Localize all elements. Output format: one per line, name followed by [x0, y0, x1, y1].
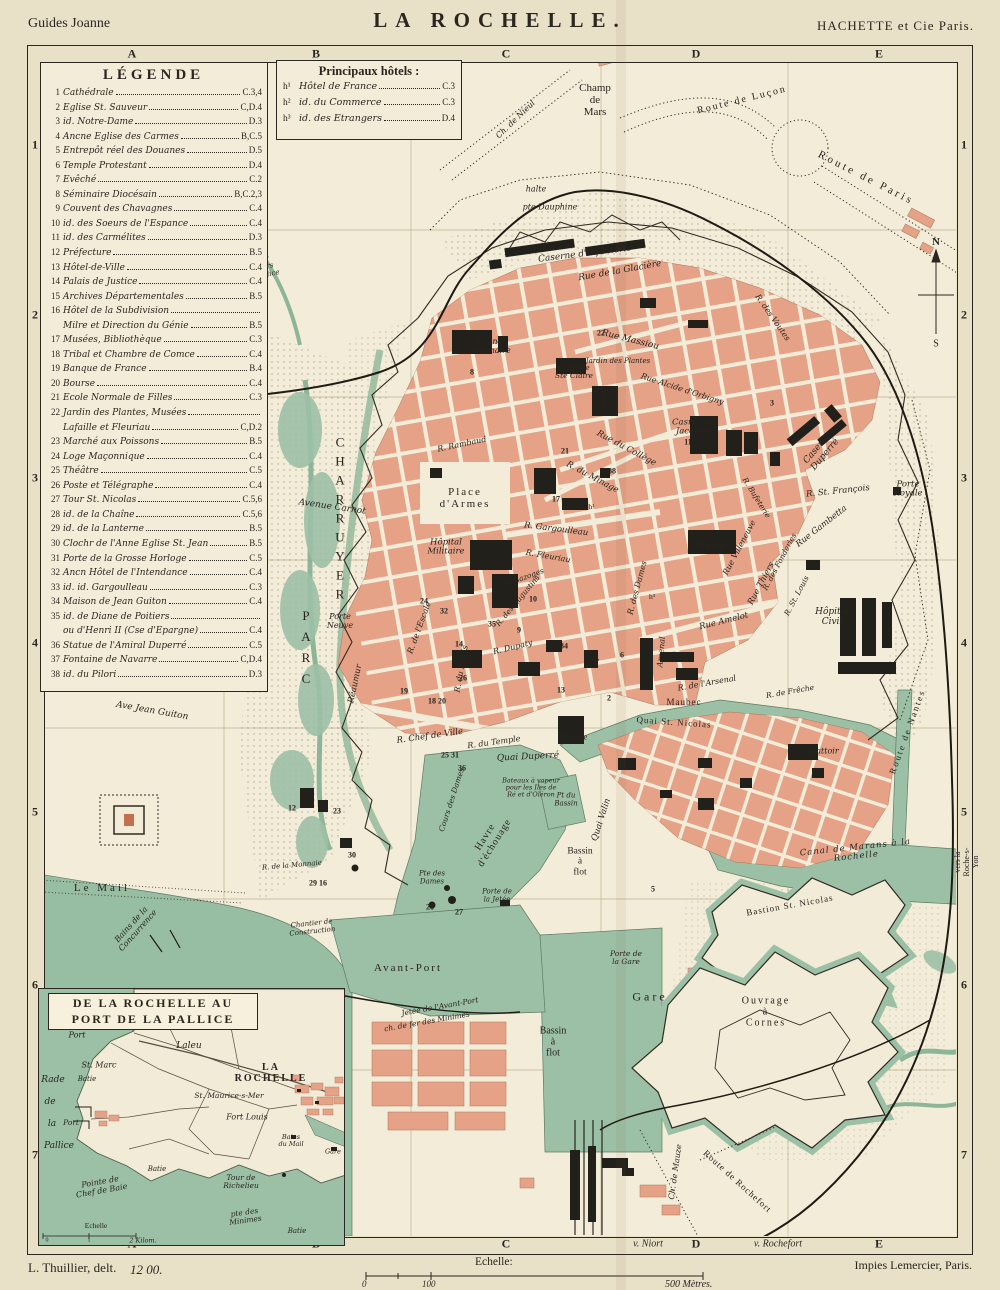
- legend-item-name: Milre et Direction du Génie: [63, 321, 189, 331]
- legend-item-name: id. du Pilori: [63, 670, 116, 680]
- legend-item: 34Maison de Jean GuitonC.4: [45, 596, 262, 611]
- scale-caption: Echelle:: [475, 1256, 513, 1268]
- legend-item: 26Poste et TélégrapheC.4: [45, 480, 262, 495]
- hotel-item-marker: h¹: [283, 82, 299, 92]
- legend-item-number: 12: [45, 247, 63, 257]
- grid-row-3-right: 3: [961, 471, 967, 486]
- legend-item: 14Palais de JusticeC.4: [45, 276, 262, 291]
- hotel-item-name: id. du Commerce: [299, 97, 382, 108]
- legend-item-number: 21: [45, 392, 63, 402]
- legend-item-name: Temple Protestant: [63, 161, 147, 171]
- legend-item-number: 10: [45, 218, 63, 228]
- hotel-item-name: id. des Etrangers: [299, 113, 382, 124]
- legend-item-continuation: Lafaille et FleuriauC,D.2: [45, 422, 262, 437]
- grid-row-5-left: 5: [32, 805, 38, 820]
- legend-item-name: Evêché: [63, 175, 96, 185]
- legend-item-ref: C.5,6: [242, 509, 262, 519]
- legend-item-ref: C,D.4: [240, 654, 262, 664]
- legend-item-name: Hôtel-de-Ville: [63, 263, 125, 273]
- legend-item-number: 36: [45, 640, 63, 650]
- hotel-item-name: Hôtel de France: [299, 81, 377, 92]
- legend-item-ref: C.5: [249, 553, 262, 563]
- legend-leader: [190, 574, 248, 575]
- legend-item: 12PréfectureB.5: [45, 247, 262, 262]
- legend-item-name: Ancn Hôtel de l'Intendance: [63, 568, 188, 578]
- grid-direction-note: v. Niort: [633, 1239, 663, 1250]
- legend-item-ref: D.3: [249, 232, 262, 242]
- grid-col-E-top: E: [875, 47, 883, 62]
- legend-item-name: Banque de France: [63, 364, 147, 374]
- legend-item-name: id. de la Lanterne: [63, 524, 144, 534]
- legend-item: 10id. des Soeurs de l'EspanceC.4: [45, 218, 262, 233]
- grid-row-3-left: 3: [32, 471, 38, 486]
- legend-item-ref: B.5: [249, 320, 262, 330]
- legend-leader: [174, 210, 247, 211]
- legend-item: 3id. Notre-DameD.3: [45, 116, 262, 131]
- legend-leader: [113, 254, 247, 255]
- legend-item: 29id. de la LanterneB.5: [45, 523, 262, 538]
- legend-item-number: 3: [45, 116, 63, 126]
- legend-item: 35id. de Diane de Poitiers: [45, 611, 262, 626]
- legend-leader: [384, 104, 441, 105]
- grid-col-C-bottom: C: [502, 1237, 511, 1252]
- legend-item: 18Tribal et Chambre de ComceC.4: [45, 349, 262, 364]
- legend-item: 33id. id. GargoulleauC.3: [45, 582, 262, 597]
- legend-item-number: 32: [45, 567, 63, 577]
- legend-item-ref: B,C.5: [241, 131, 262, 141]
- legend-item-ref: B.5: [249, 538, 262, 548]
- legend-leader: [171, 312, 260, 313]
- legend-list: 1CathédraleC.3,42Eglise St. SauveurC,D.4…: [45, 87, 262, 683]
- legend-item-ref: C.4: [249, 451, 262, 461]
- legend-item-name: Couvent des Chavagnes: [63, 204, 172, 214]
- legend-item-number: 28: [45, 509, 63, 519]
- legend-item-number: 4: [45, 131, 63, 141]
- legend-item-name: id. id. Gargoulleau: [63, 583, 148, 593]
- legend-item-name: Clochr de l'Anne Eglise St. Jean: [63, 539, 208, 549]
- legend-leader: [159, 196, 232, 197]
- hotels-list: h¹Hôtel de FranceC.3h²id. du CommerceC.3…: [283, 81, 455, 129]
- hotel-item-marker: h²: [283, 98, 299, 108]
- legend-item-ref: C.4: [249, 625, 262, 635]
- legend-leader: [127, 269, 247, 270]
- legend-item-number: 25: [45, 465, 63, 475]
- grid-col-A-top: A: [128, 47, 137, 62]
- legend-item-ref: C,D.2: [240, 422, 262, 432]
- map-sheet: Champ de MarsRoute de LuçonRoute de Pari…: [0, 0, 1000, 1290]
- legend-item-ref: C.3: [249, 334, 262, 344]
- legend-item-ref: B.5: [249, 247, 262, 257]
- scale-bar: [358, 1268, 718, 1284]
- legend-item-ref: C.4: [249, 349, 262, 359]
- legend-item: 27Tour St. NicolasC.5,6: [45, 494, 262, 509]
- scale-hundred: 100: [422, 1279, 436, 1289]
- legend-item-name: Entrepôt réel des Douanes: [63, 146, 185, 156]
- legend-leader: [146, 530, 247, 531]
- grid-col-D-bottom: D: [692, 1237, 701, 1252]
- legend-item: 21Ecole Normale de FillesC.3: [45, 392, 262, 407]
- legend-item-number: 29: [45, 523, 63, 533]
- legend-item-name: Maison de Jean Guiton: [63, 597, 167, 607]
- grid-row-2-right: 2: [961, 308, 967, 323]
- legend-item-name: id. Notre-Dame: [63, 117, 133, 127]
- plate-number: 12 00.: [130, 1262, 163, 1278]
- grid-row-4-left: 4: [32, 636, 38, 651]
- legend-item-ref: C.5: [249, 640, 262, 650]
- printer-credit: Impies Lemercier, Paris.: [855, 1258, 972, 1273]
- legend-item-number: 34: [45, 596, 63, 606]
- legend-item-name: Porte de la Grosse Horloge: [63, 554, 187, 564]
- inset-title-line2: PORT DE LA PALLICE: [49, 1012, 257, 1028]
- grid-direction-note: v. Rochefort: [754, 1239, 802, 1250]
- legend-item-ref: B.5: [249, 291, 262, 301]
- hotel-item-ref: C.3: [442, 81, 455, 91]
- legend-leader: [384, 120, 440, 121]
- legend-leader: [138, 501, 240, 502]
- legend-item-ref: B,C.2,3: [234, 189, 262, 199]
- legend-item: 31Porte de la Grosse HorlogeC.5: [45, 553, 262, 568]
- legend-item-name: Ecole Normale de Filles: [63, 393, 172, 403]
- legend-item: 19Banque de FranceB.4: [45, 363, 262, 378]
- legend-leader: [149, 370, 248, 371]
- legend-leader: [190, 225, 247, 226]
- legend-item: 32Ancn Hôtel de l'IntendanceC.4: [45, 567, 262, 582]
- legend-leader: [97, 385, 247, 386]
- hotel-item: h¹Hôtel de FranceC.3: [283, 81, 455, 97]
- legend-item-ref: D.5: [249, 145, 262, 155]
- legend-leader: [161, 443, 247, 444]
- legend-item-number: 38: [45, 669, 63, 679]
- legend-item-number: 16: [45, 305, 63, 315]
- scale-zero: 0: [362, 1279, 367, 1289]
- legend-item-ref: C.4: [249, 378, 262, 388]
- legend-item-name: Eglise St. Sauveur: [63, 103, 147, 113]
- legend-box: LÉGENDE 1CathédraleC.3,42Eglise St. Sauv…: [40, 62, 268, 692]
- legend-item-name: Séminaire Diocésain: [63, 190, 157, 200]
- legend-item-ref: C.4: [249, 203, 262, 213]
- legend-item: 6Temple ProtestantD.4: [45, 160, 262, 175]
- legend-item-number: 22: [45, 407, 63, 417]
- legend-item-ref: C,D.4: [240, 102, 262, 112]
- legend-item: 9Couvent des ChavagnesC.4: [45, 203, 262, 218]
- hotel-item: h³id. des EtrangersD.4: [283, 113, 455, 129]
- legend-item-ref: B.4: [249, 363, 262, 373]
- legend-item-name: Marché aux Poissons: [63, 437, 159, 447]
- legend-item-ref: D.3: [249, 669, 262, 679]
- legend-item-number: 14: [45, 276, 63, 286]
- hotel-item-ref: C.3: [442, 97, 455, 107]
- inset-title: DE LA ROCHELLE AU PORT DE LA PALLICE: [48, 993, 258, 1030]
- legend-leader: [189, 560, 248, 561]
- legend-leader: [152, 429, 238, 430]
- legend-leader: [150, 589, 247, 590]
- legend-item-number: 5: [45, 145, 63, 155]
- legend-item: 2Eglise St. SauveurC,D.4: [45, 102, 262, 117]
- legend-item-name: Tribal et Chambre de Comce: [63, 350, 195, 360]
- legend-item: 28id. de la ChaîneC.5,6: [45, 509, 262, 524]
- legend-item-name: Ancne Eglise des Carmes: [63, 132, 179, 142]
- legend-item: 37Fontaine de NavarreC,D.4: [45, 654, 262, 669]
- cartographer-credit: L. Thuillier, delt.: [28, 1260, 116, 1276]
- legend-item-number: 8: [45, 189, 63, 199]
- hotel-item-marker: h³: [283, 114, 299, 124]
- grid-col-C-top: C: [502, 47, 511, 62]
- legend-item-name: id. des Carmélites: [63, 233, 146, 243]
- legend-item-number: 7: [45, 174, 63, 184]
- legend-item-number: 19: [45, 363, 63, 373]
- legend-item: 36Statue de l'Amiral DuperréC.5: [45, 640, 262, 655]
- legend-item-name: id. des Soeurs de l'Espance: [63, 219, 188, 229]
- legend-item-name: Poste et Télégraphe: [63, 481, 153, 491]
- inset-title-line1: DE LA ROCHELLE AU: [49, 996, 257, 1012]
- legend-leader: [191, 327, 248, 328]
- legend-item: 7EvêchéC.2: [45, 174, 262, 189]
- legend-leader: [171, 618, 260, 619]
- legend-item-name: Jardin des Plantes, Musées: [63, 408, 186, 418]
- legend-leader: [169, 603, 247, 604]
- legend-item-ref: C.5: [249, 465, 262, 475]
- legend-leader: [181, 138, 239, 139]
- inset-map-box: DE LA ROCHELLE AU PORT DE LA PALLICE Por…: [38, 988, 345, 1246]
- legend-item-name: Théâtre: [63, 466, 99, 476]
- legend-leader: [147, 458, 247, 459]
- legend-item-ref: C.3,4: [242, 87, 262, 97]
- grid-row-6-right: 6: [961, 978, 967, 993]
- legend-item-number: 20: [45, 378, 63, 388]
- legend-item-ref: C.3: [249, 392, 262, 402]
- legend-item: 30Clochr de l'Anne Eglise St. JeanB.5: [45, 538, 262, 553]
- legend-item-number: 2: [45, 102, 63, 112]
- legend-item-number: 11: [45, 232, 63, 242]
- legend-leader: [174, 399, 247, 400]
- map-title: LA ROCHELLE.: [373, 8, 627, 33]
- legend-leader: [135, 123, 246, 124]
- legend-item-name: Lafaille et Fleuriau: [63, 423, 150, 433]
- legend-item: 11id. des CarmélitesD.3: [45, 232, 262, 247]
- legend-item-number: 1: [45, 87, 63, 97]
- legend-item-name: Statue de l'Amiral Duperré: [63, 641, 186, 651]
- legend-item-ref: C.4: [249, 480, 262, 490]
- legend-item-ref: C.5,6: [242, 494, 262, 504]
- legend-item: 25ThéâtreC.5: [45, 465, 262, 480]
- legend-item-number: 13: [45, 262, 63, 272]
- legend-item: 22Jardin des Plantes, Musées: [45, 407, 262, 422]
- legend-item-ref: D.3: [249, 116, 262, 126]
- legend-item-name: id. de Diane de Poitiers: [63, 612, 169, 622]
- legend-item: 17Musées, BibliothèqueC.3: [45, 334, 262, 349]
- legend-item-name: Musées, Bibliothèque: [63, 335, 162, 345]
- grid-row-1-left: 1: [32, 138, 38, 153]
- legend-item: 4Ancne Eglise des CarmesB,C.5: [45, 131, 262, 146]
- legend-item-number: 17: [45, 334, 63, 344]
- legend-leader: [149, 109, 238, 110]
- legend-item-name: Loge Maçonnique: [63, 452, 145, 462]
- legend-leader: [98, 181, 247, 182]
- legend-leader: [118, 676, 247, 677]
- legend-title: LÉGENDE: [45, 67, 262, 84]
- legend-item-name: Hôtel de la Subdivision: [63, 306, 169, 316]
- legend-leader: [136, 516, 240, 517]
- grid-row-2-left: 2: [32, 308, 38, 323]
- legend-item-number: 33: [45, 582, 63, 592]
- legend-item-number: 31: [45, 553, 63, 563]
- legend-leader: [188, 647, 247, 648]
- legend-leader: [164, 341, 248, 342]
- publisher-name: HACHETTE et Cie Paris.: [817, 18, 974, 34]
- legend-item-ref: B.5: [249, 436, 262, 446]
- legend-item-number: 37: [45, 654, 63, 664]
- legend-leader: [116, 94, 241, 95]
- legend-leader: [186, 298, 247, 299]
- legend-leader: [188, 414, 260, 415]
- legend-item-ref: C.2: [249, 174, 262, 184]
- hotels-title: Principaux hôtels :: [283, 64, 455, 79]
- scale-end: 500 Mètres.: [665, 1279, 712, 1290]
- legend-item-name: ou d'Henri II (Cse d'Epargne): [63, 626, 198, 636]
- legend-leader: [200, 632, 247, 633]
- legend-item-number: 27: [45, 494, 63, 504]
- hotel-item-ref: D.4: [442, 113, 455, 123]
- legend-item: 5Entrepôt réel des DouanesD.5: [45, 145, 262, 160]
- legend-leader: [187, 152, 247, 153]
- legend-item: 8Séminaire DiocésainB,C.2,3: [45, 189, 262, 204]
- legend-item-name: id. de la Chaîne: [63, 510, 134, 520]
- legend-leader: [149, 167, 247, 168]
- legend-item-number: 24: [45, 451, 63, 461]
- legend-item-name: Tour St. Nicolas: [63, 495, 136, 505]
- legend-item-name: Bourse: [63, 379, 95, 389]
- legend-leader: [139, 283, 247, 284]
- legend-item-ref: B.5: [249, 523, 262, 533]
- legend-item-number: 23: [45, 436, 63, 446]
- legend-leader: [210, 545, 247, 546]
- legend-item-number: 26: [45, 480, 63, 490]
- legend-item: 15Archives DépartementalesB.5: [45, 291, 262, 306]
- legend-item-ref: C.4: [249, 262, 262, 272]
- grid-row-4-right: 4: [961, 636, 967, 651]
- legend-item-continuation: Milre et Direction du GénieB.5: [45, 320, 262, 335]
- legend-item-ref: C.4: [249, 567, 262, 577]
- legend-item: 24Loge MaçonniqueC.4: [45, 451, 262, 466]
- hotels-box: Principaux hôtels : h¹Hôtel de FranceC.3…: [276, 60, 462, 140]
- hotel-item: h²id. du CommerceC.3: [283, 97, 455, 113]
- legend-item: 13Hôtel-de-VilleC.4: [45, 262, 262, 277]
- legend-item: 20BourseC.4: [45, 378, 262, 393]
- legend-item-ref: D.4: [249, 160, 262, 170]
- legend-item-ref: C.4: [249, 596, 262, 606]
- legend-item-number: 18: [45, 349, 63, 359]
- grid-row-5-right: 5: [961, 805, 967, 820]
- legend-leader: [155, 487, 247, 488]
- legend-item-number: 9: [45, 203, 63, 213]
- legend-item-name: Cathédrale: [63, 88, 114, 98]
- legend-leader: [159, 661, 238, 662]
- legend-leader: [101, 472, 247, 473]
- legend-item-continuation: ou d'Henri II (Cse d'Epargne)C.4: [45, 625, 262, 640]
- legend-item-name: Fontaine de Navarre: [63, 655, 157, 665]
- legend-item-name: Archives Départementales: [63, 292, 184, 302]
- grid-col-D-top: D: [692, 47, 701, 62]
- legend-leader: [197, 356, 247, 357]
- grid-row-7-right: 7: [961, 1148, 967, 1163]
- legend-item-ref: C.3: [249, 582, 262, 592]
- legend-item-number: 6: [45, 160, 63, 170]
- legend-leader: [379, 88, 440, 89]
- publisher-series: Guides Joanne: [28, 16, 110, 32]
- legend-item: 23Marché aux PoissonsB.5: [45, 436, 262, 451]
- legend-item-number: 35: [45, 611, 63, 621]
- legend-item-number: 15: [45, 291, 63, 301]
- grid-col-E-bottom: E: [875, 1237, 883, 1252]
- legend-item: 38id. du PiloriD.3: [45, 669, 262, 684]
- legend-leader: [148, 239, 247, 240]
- legend-item: 16Hôtel de la Subdivision: [45, 305, 262, 320]
- grid-row-1-right: 1: [961, 138, 967, 153]
- legend-item: 1CathédraleC.3,4: [45, 87, 262, 102]
- legend-item-ref: C.4: [249, 276, 262, 286]
- legend-item-ref: C.4: [249, 218, 262, 228]
- legend-item-name: Palais de Justice: [63, 277, 137, 287]
- legend-item-number: 30: [45, 538, 63, 548]
- legend-item-name: Préfecture: [63, 248, 111, 258]
